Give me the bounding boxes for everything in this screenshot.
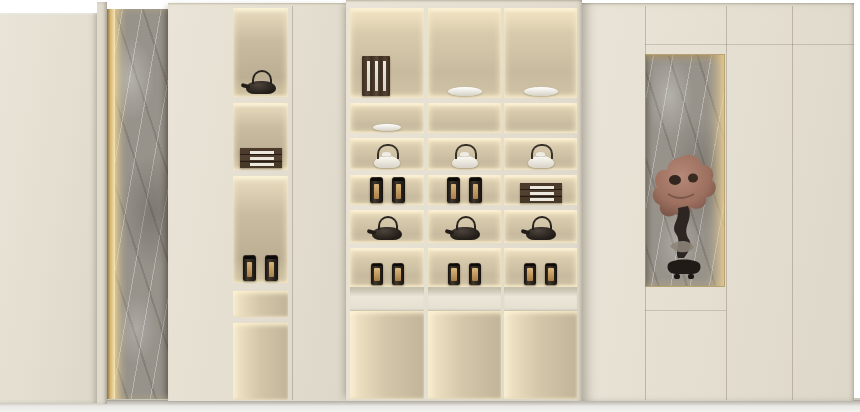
right-drawer-seam: [645, 310, 726, 311]
center-niche-r7c2: [428, 311, 501, 399]
dark-teapot: [246, 81, 276, 94]
center-niche-r6c2: [428, 248, 501, 287]
center-drawer-1: [350, 287, 424, 311]
caddy: [392, 177, 405, 203]
right-door-seam-3: [792, 6, 793, 400]
caddy: [447, 177, 460, 203]
center-niche-r2c3: [504, 103, 577, 133]
center-niche-r1c3: [504, 8, 577, 98]
driftwood-knot: [670, 241, 694, 252]
center-niche-r3c1: [350, 138, 424, 170]
tower-niche-3: [233, 176, 288, 283]
tower-door-seam: [292, 6, 293, 400]
center-niche-r1c2: [428, 8, 501, 98]
center-niche-r5c1: [350, 210, 424, 243]
right-top-panel-seam: [645, 44, 854, 45]
center-niche-r1c1: [350, 8, 424, 98]
center-niche-r2c1: [350, 103, 424, 133]
white-teapot: [528, 156, 554, 168]
tower-niche-1: [233, 8, 288, 97]
center-niche-r5c2: [428, 210, 501, 243]
marble-backlight-strip: [107, 9, 115, 399]
center-drawer-3: [504, 287, 577, 311]
caddy: [243, 255, 256, 281]
white-teapot: [452, 156, 478, 168]
white-teapot: [374, 156, 400, 168]
box-stack: [240, 148, 282, 168]
marble-accent-column: [115, 9, 168, 399]
center-niche-r4c2: [428, 175, 501, 205]
caddy: [370, 177, 383, 203]
caddy-gold: [469, 263, 481, 285]
center-niche-r6c3: [504, 248, 577, 287]
center-niche-r6c1: [350, 248, 424, 287]
dark-teapot: [450, 227, 480, 240]
right-door-seam-1: [645, 6, 646, 400]
white-dish: [373, 124, 401, 131]
center-niche-r3c2: [428, 138, 501, 170]
caddy: [469, 177, 482, 203]
center-niche-r2c2: [428, 103, 501, 133]
center-niche-r7c3: [504, 311, 577, 399]
caddy-gold: [524, 263, 536, 285]
center-niche-r5c3: [504, 210, 577, 243]
driftwood-hole-2: [688, 174, 698, 183]
caddy-gold: [448, 263, 460, 285]
driftwood-sculpture: [648, 150, 720, 284]
driftwood-hole-1: [669, 175, 681, 185]
center-drawer-2: [428, 287, 501, 311]
center-niche-r3c3: [504, 138, 577, 170]
book-stack: [362, 56, 390, 96]
tower-niche-2: [233, 103, 288, 170]
center-niche-r4c3: [504, 175, 577, 205]
center-niche-r4c1: [350, 175, 424, 205]
dark-teapot: [372, 227, 402, 240]
white-bowl: [448, 87, 482, 96]
dark-teapot: [526, 227, 556, 240]
white-bowl: [524, 87, 558, 96]
tower-niche-5: [233, 323, 288, 400]
tower-niche-4: [233, 291, 288, 317]
center-niche-r7c1: [350, 311, 424, 399]
right-door-seam-2: [726, 6, 727, 400]
cabinet-wall-scene: [0, 0, 860, 412]
caddy-gold: [545, 263, 557, 285]
caddy-gold: [392, 263, 404, 285]
caddy-gold: [371, 263, 383, 285]
sculpture-stand: [667, 260, 700, 275]
left-cabinet-door: [0, 13, 97, 403]
caddy: [265, 255, 278, 281]
box-stack: [520, 183, 562, 203]
left-pilaster: [97, 2, 107, 404]
